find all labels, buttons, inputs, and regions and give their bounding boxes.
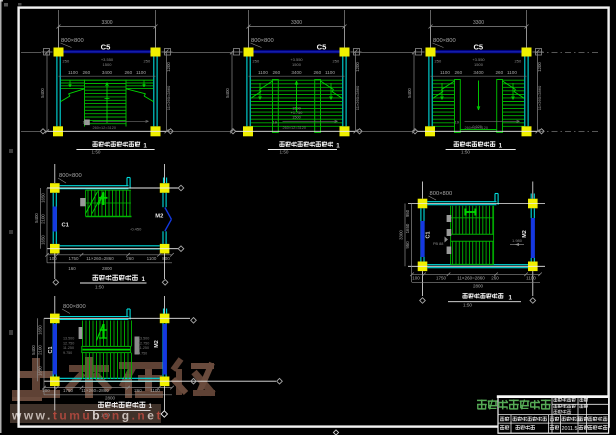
svg-text:2800: 2800 — [473, 284, 484, 289]
svg-text:1650: 1650 — [38, 366, 43, 376]
svg-text:800: 800 — [162, 256, 170, 261]
svg-text:1200: 1200 — [537, 62, 542, 72]
svg-text:260: 260 — [125, 70, 133, 75]
svg-text:1500: 1500 — [292, 116, 300, 120]
svg-text:260×12=3120: 260×12=3120 — [465, 126, 488, 130]
svg-text:1: 1 — [142, 276, 146, 283]
svg-text:1:50: 1:50 — [463, 303, 472, 308]
svg-text:M2: M2 — [522, 230, 528, 238]
svg-text:3300: 3300 — [291, 20, 302, 26]
svg-text:5400: 5400 — [31, 345, 36, 355]
svg-text:9.750: 9.750 — [63, 351, 72, 355]
svg-text:13.500: 13.500 — [138, 337, 149, 341]
svg-text:1100: 1100 — [258, 70, 268, 75]
svg-text:1100: 1100 — [150, 388, 160, 393]
svg-text:1500: 1500 — [292, 62, 302, 67]
svg-text:1500: 1500 — [103, 62, 113, 67]
svg-text:1100: 1100 — [325, 70, 335, 75]
svg-text:11×260=2860: 11×260=2860 — [166, 85, 171, 110]
svg-text:3300: 3300 — [101, 20, 112, 26]
svg-text:100: 100 — [49, 256, 57, 261]
svg-text:1650: 1650 — [41, 193, 46, 203]
svg-text:3400: 3400 — [102, 70, 113, 75]
svg-text:800×800: 800×800 — [433, 38, 456, 44]
svg-text:1200: 1200 — [166, 62, 171, 72]
svg-text:1100: 1100 — [136, 70, 146, 75]
svg-text:M2: M2 — [154, 340, 160, 348]
svg-text:11×260=2860: 11×260=2860 — [355, 85, 360, 110]
svg-text:5400: 5400 — [225, 88, 230, 98]
svg-text:3400: 3400 — [291, 70, 302, 75]
svg-text:C5: C5 — [317, 42, 327, 51]
svg-text:1650: 1650 — [41, 235, 46, 245]
svg-text:800×800: 800×800 — [251, 38, 274, 44]
svg-text:160: 160 — [68, 266, 76, 271]
svg-text:260: 260 — [126, 256, 134, 261]
svg-text:3400: 3400 — [473, 70, 484, 75]
svg-text:1:50: 1:50 — [461, 150, 470, 155]
svg-text:260: 260 — [273, 70, 281, 75]
svg-text:2800: 2800 — [105, 395, 116, 400]
svg-text:1750: 1750 — [68, 256, 79, 261]
svg-text:950: 950 — [405, 241, 410, 249]
svg-text:C1: C1 — [48, 347, 54, 354]
svg-text:2100: 2100 — [38, 345, 43, 355]
svg-text:1100: 1100 — [147, 256, 157, 261]
svg-text:250: 250 — [333, 59, 340, 64]
svg-text:1200: 1200 — [355, 62, 360, 72]
svg-text:1:50: 1:50 — [95, 285, 104, 290]
svg-text:www.tumubong.net: www.tumubong.net — [11, 408, 163, 422]
svg-text:260: 260 — [83, 70, 91, 75]
svg-text:C1: C1 — [62, 223, 70, 229]
svg-text:1: 1 — [509, 294, 513, 301]
svg-text:5400: 5400 — [40, 88, 45, 98]
svg-text:11.250: 11.250 — [138, 346, 149, 350]
svg-text:260: 260 — [134, 388, 142, 393]
svg-text:1500: 1500 — [474, 62, 484, 67]
svg-text:PB 88: PB 88 — [433, 242, 443, 246]
svg-text:260×12=3120: 260×12=3120 — [93, 126, 116, 130]
svg-text:11×260=2860: 11×260=2860 — [457, 276, 485, 281]
svg-text:1650: 1650 — [38, 325, 43, 335]
svg-text:800×800: 800×800 — [63, 304, 86, 310]
svg-text:100: 100 — [412, 276, 420, 281]
svg-text:11.250: 11.250 — [63, 346, 74, 350]
svg-text:19: 19 — [273, 120, 278, 125]
svg-text:260: 260 — [314, 70, 322, 75]
svg-text:19: 19 — [455, 120, 460, 125]
svg-text:2800: 2800 — [102, 266, 113, 271]
svg-text:9.750: 9.750 — [138, 351, 147, 355]
svg-text:950: 950 — [405, 209, 410, 217]
svg-text:1100: 1100 — [526, 276, 536, 281]
svg-text:19: 19 — [83, 120, 88, 125]
svg-text:1750: 1750 — [63, 388, 74, 393]
svg-text:250: 250 — [144, 59, 151, 64]
svg-text:1: 1 — [336, 142, 340, 149]
svg-text:1:50: 1:50 — [280, 150, 289, 155]
svg-text:260: 260 — [496, 70, 504, 75]
svg-text:5400: 5400 — [34, 213, 39, 223]
svg-text:2100: 2100 — [41, 214, 46, 224]
svg-text:13.500: 13.500 — [63, 337, 74, 341]
svg-text:260: 260 — [455, 70, 463, 75]
svg-text:250: 250 — [515, 59, 522, 64]
svg-text:260: 260 — [491, 276, 499, 281]
svg-text:1750: 1750 — [436, 276, 447, 281]
svg-text:800×800: 800×800 — [59, 173, 82, 179]
svg-text:3300: 3300 — [399, 230, 404, 240]
svg-text:1100: 1100 — [68, 70, 78, 75]
svg-text:3300: 3300 — [473, 20, 484, 26]
svg-text:C5: C5 — [473, 42, 483, 51]
svg-text:1100: 1100 — [507, 70, 517, 75]
svg-text:250: 250 — [253, 59, 260, 64]
svg-text:800×800: 800×800 — [61, 38, 84, 44]
svg-text:11×260=2860: 11×260=2860 — [86, 256, 114, 261]
svg-text:1650: 1650 — [405, 223, 410, 233]
svg-text:1: 1 — [143, 142, 147, 149]
svg-text:11×260=2860: 11×260=2860 — [537, 85, 542, 110]
svg-text:C1: C1 — [426, 232, 432, 239]
svg-text:800×800: 800×800 — [430, 191, 453, 197]
svg-text:250: 250 — [63, 59, 70, 64]
svg-text:1:50: 1:50 — [92, 150, 101, 155]
svg-text:11×260=2860: 11×260=2860 — [81, 388, 109, 393]
svg-text:1100: 1100 — [440, 70, 450, 75]
svg-text:5400: 5400 — [407, 88, 412, 98]
svg-text:250: 250 — [435, 59, 442, 64]
svg-text:12.750: 12.750 — [138, 341, 149, 345]
svg-text:260×12=3120: 260×12=3120 — [283, 126, 306, 130]
svg-text:1.980: 1.980 — [512, 238, 523, 243]
svg-text:12.750: 12.750 — [63, 341, 74, 345]
svg-text:1: 1 — [499, 142, 503, 149]
svg-text:-0.450: -0.450 — [130, 227, 142, 232]
svg-text:C5: C5 — [101, 42, 111, 51]
svg-text:M2: M2 — [155, 214, 163, 220]
svg-text:2011.5: 2011.5 — [561, 426, 577, 432]
